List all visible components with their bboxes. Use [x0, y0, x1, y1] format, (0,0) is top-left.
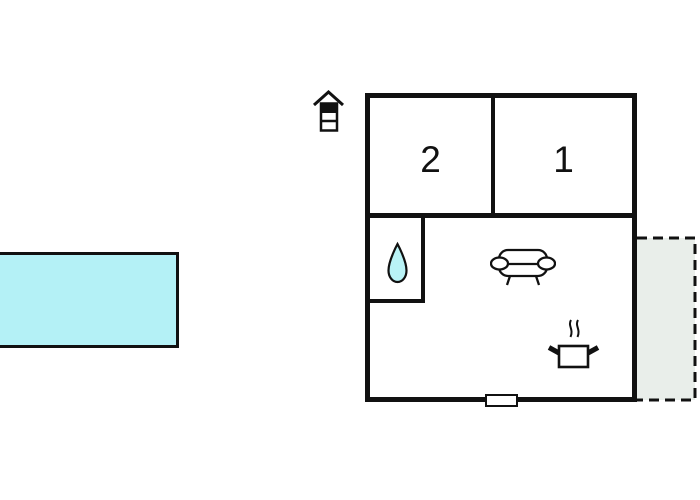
- floor-plan-canvas: 2 1: [0, 0, 700, 500]
- water-drop-icon: [384, 241, 411, 286]
- terrace-area: [637, 235, 700, 405]
- window-symbol: [485, 394, 518, 407]
- house-icon: [312, 90, 345, 133]
- bathroom-wall-bottom: [370, 299, 425, 303]
- room-label-bedroom-1: 1: [495, 141, 632, 179]
- sofa-icon: [490, 246, 556, 288]
- cooking-pot-icon: [546, 318, 600, 372]
- bathroom-wall-right: [421, 218, 425, 303]
- wall-bedrooms-living: [370, 213, 632, 218]
- swimming-pool: [0, 252, 179, 348]
- terrace-dashed-border: [637, 238, 695, 400]
- room-label-bedroom-2: 2: [370, 141, 491, 179]
